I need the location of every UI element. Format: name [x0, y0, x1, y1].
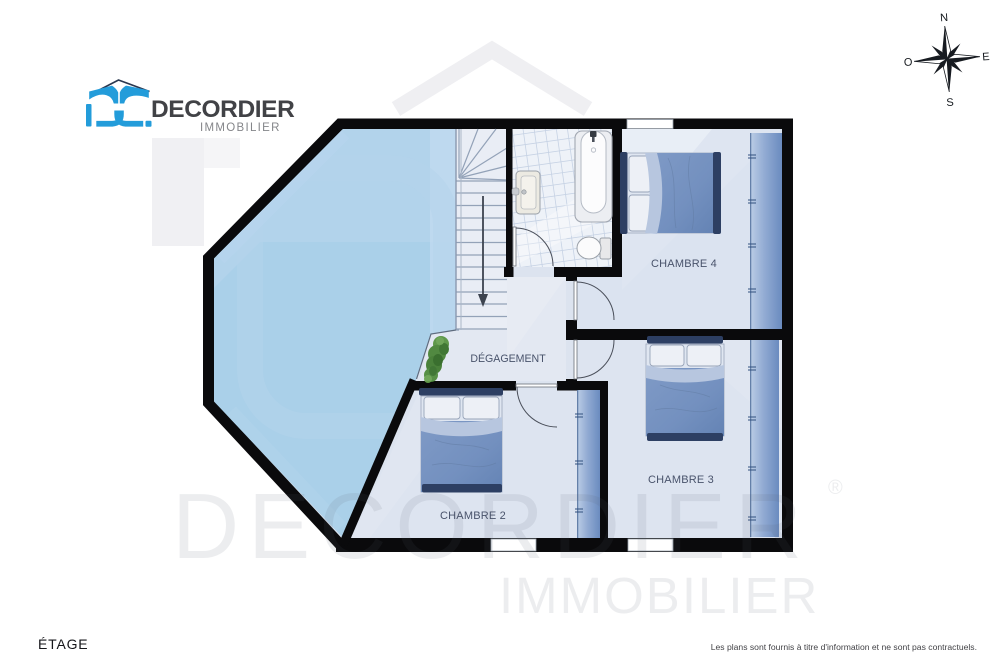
svg-text:S: S [946, 97, 954, 109]
svg-text:DÉGAGEMENT: DÉGAGEMENT [470, 352, 546, 365]
svg-text:DECORDIER: DECORDIER [151, 96, 295, 123]
svg-text:N: N [940, 12, 949, 25]
svg-text:IMMOBILIER: IMMOBILIER [200, 122, 281, 134]
svg-text:®: ® [828, 477, 843, 499]
svg-text:Les plans sont fournis à titre: Les plans sont fournis à titre d'informa… [711, 642, 977, 652]
svg-text:CHAMBRE 4: CHAMBRE 4 [651, 258, 717, 270]
svg-text:DECORDIER: DECORDIER [172, 474, 811, 578]
svg-text:O: O [903, 56, 913, 69]
svg-text:ÉTAGE: ÉTAGE [38, 636, 88, 652]
svg-text:IMMOBILIER: IMMOBILIER [499, 567, 819, 624]
svg-text:E: E [982, 51, 990, 63]
